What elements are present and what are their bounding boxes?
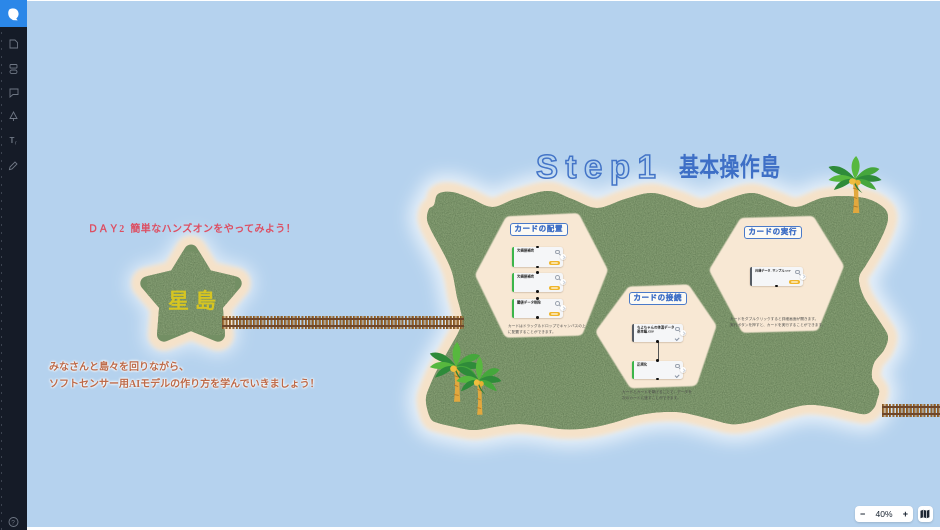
svg-text:r: r [15,141,17,147]
svg-text:?: ? [11,520,15,527]
svg-text:T: T [10,136,15,145]
